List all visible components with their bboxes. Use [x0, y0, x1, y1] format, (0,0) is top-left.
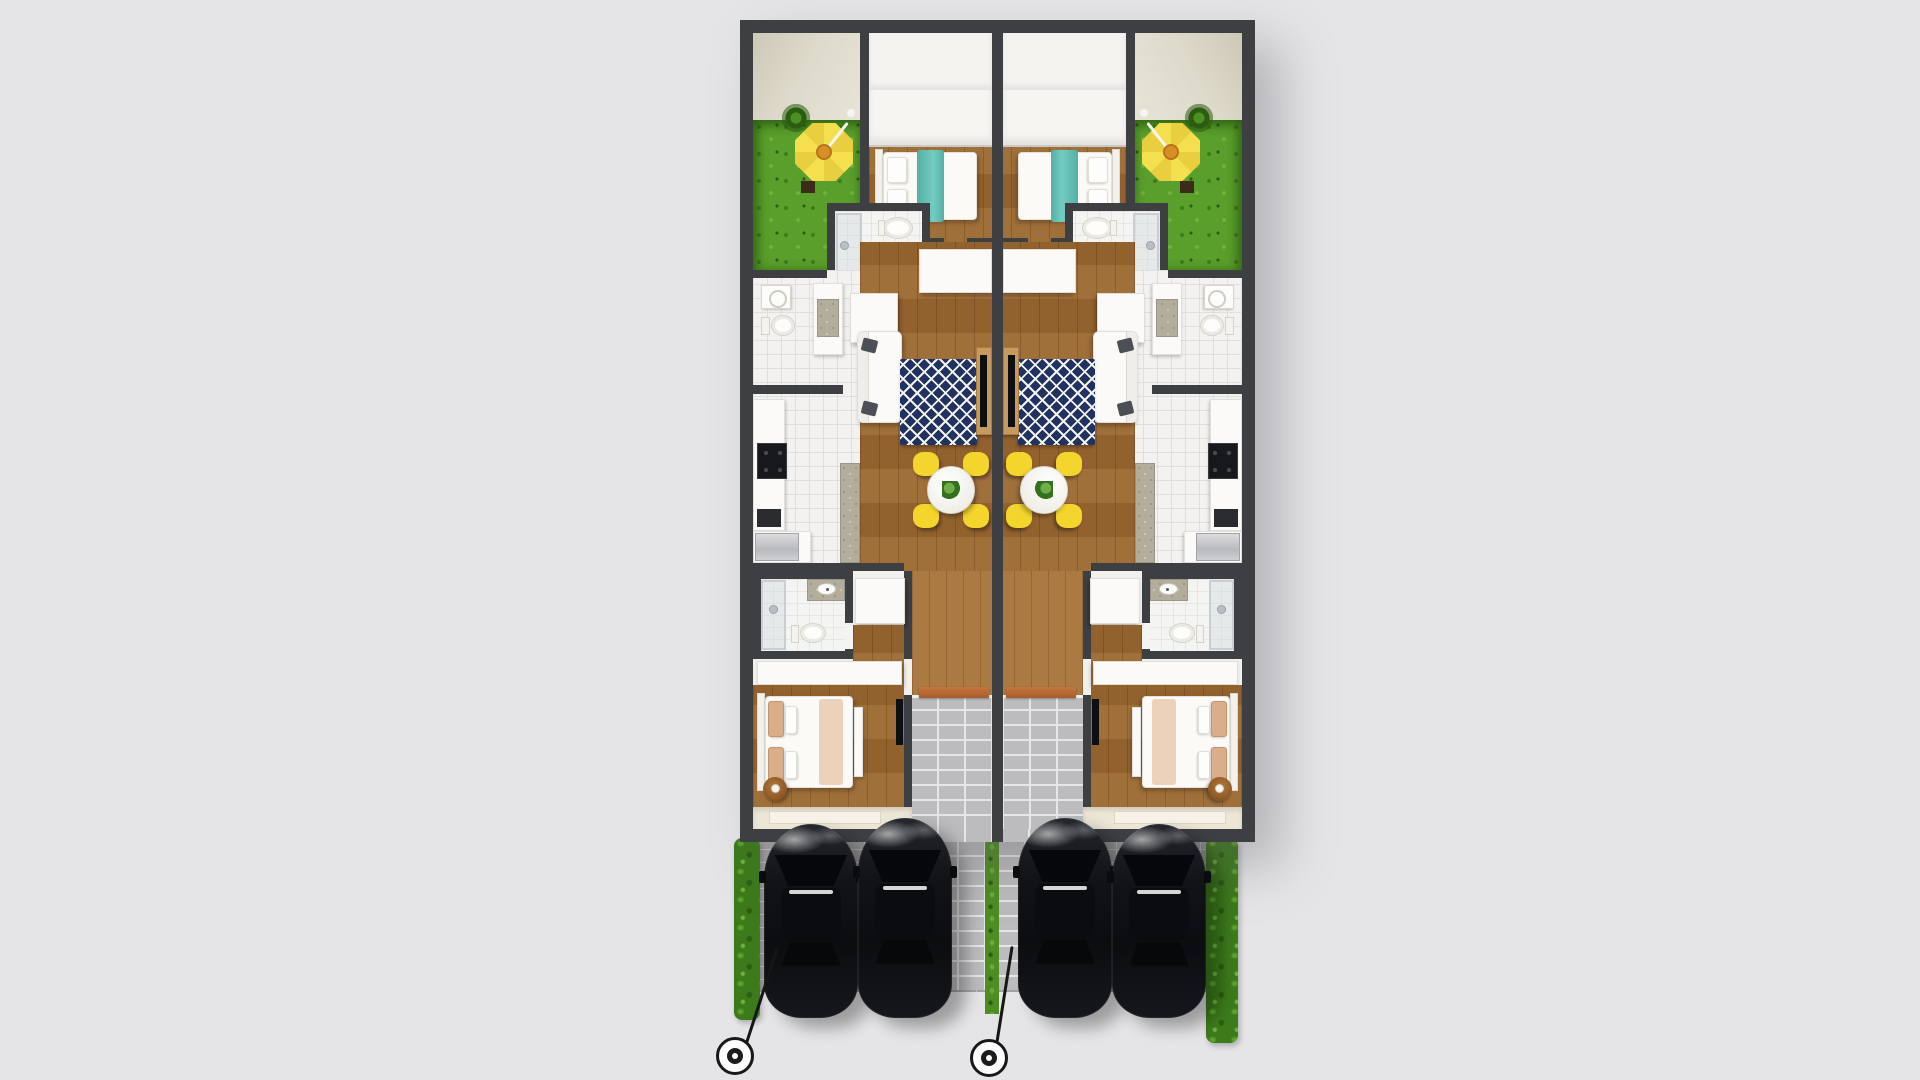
- car: [764, 824, 858, 1018]
- car-mirror-left: [1107, 871, 1114, 883]
- wall-service-kitchen: [1152, 385, 1242, 394]
- unit-right: [1003, 33, 1242, 829]
- wall-party: [992, 20, 1003, 842]
- car-mirror-left: [853, 866, 860, 878]
- bedroom1-wardrobe: [869, 90, 992, 147]
- car-mirror-right: [1204, 871, 1211, 883]
- car-roof-strip: [1137, 890, 1180, 894]
- bed-blanket-fold: [819, 699, 843, 785]
- wc-toilet-tank: [761, 317, 770, 335]
- wall-right: [1242, 20, 1255, 842]
- umbrella-pole-tip: [847, 109, 855, 117]
- scene-canvas: [0, 0, 1920, 1080]
- shower-head: [1217, 605, 1226, 614]
- umbrella-base: [1180, 181, 1194, 193]
- wall-hall-divider: [904, 571, 912, 659]
- island-bar: [840, 463, 860, 563]
- entry-hall-floor: [912, 571, 992, 695]
- bed-pillow: [1198, 751, 1210, 779]
- car-mirror-left: [1013, 866, 1020, 878]
- wc-toilet: [1200, 315, 1224, 336]
- bed-pillow-tan: [768, 701, 784, 737]
- shower-head: [769, 605, 778, 614]
- navy-trellis-rug: [900, 359, 977, 445]
- wc-toilet-tank: [1225, 317, 1234, 335]
- hall-closet-2: [1090, 578, 1140, 624]
- street-lamp-core: [986, 1055, 992, 1061]
- bed-pillow: [887, 157, 907, 183]
- lawn-divider-strip: [985, 842, 999, 1014]
- umbrella-base: [801, 181, 815, 193]
- bedroom1-wall-band: [869, 33, 992, 90]
- car-roof: [1035, 884, 1095, 938]
- porch-mat: [769, 811, 881, 824]
- table-plant: [1035, 481, 1053, 499]
- wc-toilet: [771, 315, 795, 336]
- car-roof-strip: [789, 890, 832, 894]
- bathroom-2: [753, 571, 853, 659]
- bedroom2-dresser: [1093, 661, 1238, 685]
- laundry-counter-top: [817, 299, 839, 337]
- dishwasher: [757, 509, 781, 527]
- car-roof-strip: [1043, 886, 1086, 890]
- washing-machine: [1204, 285, 1234, 309]
- sofa: [1093, 331, 1138, 423]
- bed-headboard: [757, 693, 765, 791]
- toilet-tank: [1110, 220, 1117, 236]
- wall-dining-bath2: [1091, 563, 1242, 571]
- bed-pillow: [1198, 706, 1210, 734]
- porch-mat: [1114, 811, 1226, 824]
- hall-closet-a: [919, 249, 992, 293]
- shower: [1209, 580, 1234, 650]
- car-roof: [1129, 888, 1189, 940]
- wall-patio-service: [753, 270, 827, 278]
- table-lamp: [1215, 784, 1224, 793]
- fridge: [1196, 533, 1240, 561]
- wall-service-kitchen: [753, 385, 843, 394]
- front-door-threshold: [919, 687, 989, 698]
- bed-pillow-tan: [1211, 701, 1227, 737]
- laundry-counter-top: [1156, 299, 1178, 337]
- bed-blanket-fold: [1152, 699, 1176, 785]
- wall-left: [740, 20, 753, 842]
- umbrella-hub: [1163, 144, 1179, 160]
- hall-closet-2: [855, 578, 905, 624]
- table-lamp: [771, 784, 780, 793]
- wall-patio-service: [1168, 270, 1242, 278]
- toilet: [1082, 217, 1112, 239]
- toilet-tank: [1196, 625, 1204, 643]
- street-lamp-core: [732, 1053, 738, 1059]
- car-roof-strip: [883, 886, 926, 890]
- shower: [761, 580, 786, 650]
- hedge-right: [1206, 838, 1238, 1043]
- vanity-sink: [1159, 583, 1178, 595]
- umbrella-hub: [816, 144, 832, 160]
- sofa: [857, 331, 902, 423]
- toilet: [883, 217, 913, 239]
- bed-headboard: [1230, 693, 1238, 791]
- vanity-sink: [817, 583, 836, 595]
- car-mirror-left: [759, 871, 766, 883]
- shower-head: [1146, 241, 1155, 250]
- bathroom2-door-gap: [845, 623, 853, 649]
- hall-closet-a: [1003, 249, 1076, 293]
- entry-hall-floor: [1003, 571, 1083, 695]
- bed-pillow: [785, 706, 797, 734]
- shower-head: [840, 241, 849, 250]
- island-bar: [1135, 463, 1155, 563]
- unit-left: [753, 33, 992, 829]
- toilet-tank: [791, 625, 799, 643]
- umbrella-pole-tip: [1140, 109, 1148, 117]
- navy-trellis-rug: [1018, 359, 1095, 445]
- toilet-tank: [878, 220, 885, 236]
- front-door-threshold: [1006, 687, 1076, 698]
- bedroom1-wall-band: [1003, 33, 1126, 90]
- bedroom2-tv: [896, 699, 903, 745]
- car: [1018, 818, 1112, 1018]
- bathroom2-door-gap: [1142, 623, 1150, 649]
- living-tv: [1008, 355, 1015, 427]
- bed-pillow: [785, 751, 797, 779]
- entry-stoop-bricks: [1003, 698, 1083, 829]
- entry-stoop-bricks: [912, 698, 992, 829]
- bathroom-2: [1142, 571, 1242, 659]
- bedroom2-dresser: [757, 661, 902, 685]
- cooktop: [1208, 443, 1238, 479]
- cooktop: [757, 443, 787, 479]
- toilet: [800, 623, 826, 643]
- bedroom1-wardrobe: [1003, 90, 1126, 147]
- car-mirror-right: [950, 866, 957, 878]
- toilet: [1169, 623, 1195, 643]
- duplex-building: [740, 20, 1255, 842]
- washing-machine: [761, 285, 791, 309]
- car: [858, 818, 952, 1018]
- car-roof: [781, 888, 841, 940]
- table-plant: [942, 481, 960, 499]
- dining-set: [1004, 445, 1084, 535]
- hedge-left: [734, 838, 760, 1020]
- wall-dining-bath2: [753, 563, 904, 571]
- fridge: [755, 533, 799, 561]
- bed-pillow: [1088, 157, 1108, 183]
- living-tv: [980, 355, 987, 427]
- bedroom2-tv: [1092, 699, 1099, 745]
- car-roof: [875, 884, 935, 938]
- car: [1112, 824, 1206, 1018]
- bed-foot-bench: [1132, 707, 1141, 777]
- bed-foot-bench: [854, 707, 863, 777]
- dishwasher: [1214, 509, 1238, 527]
- dining-set: [911, 445, 991, 535]
